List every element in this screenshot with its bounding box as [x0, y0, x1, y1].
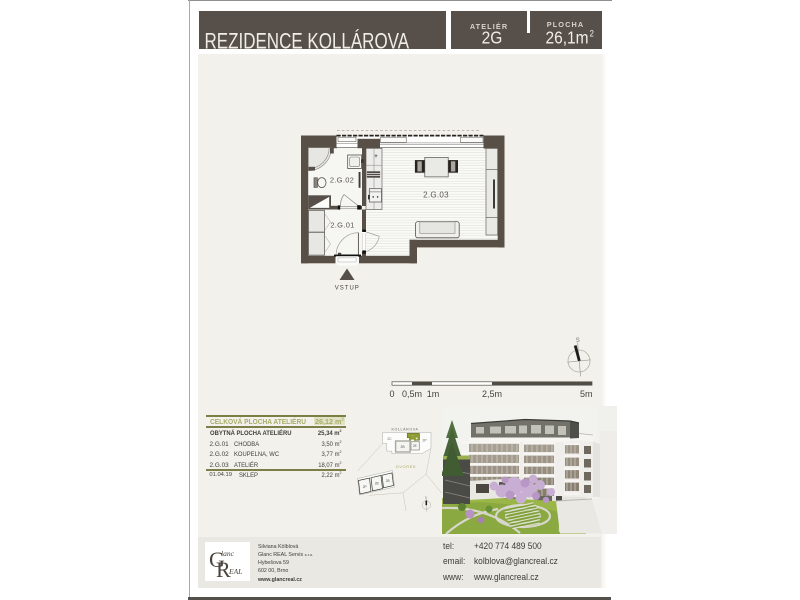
svg-text:0,5m: 0,5m [402, 389, 422, 399]
svg-text:REZIDENCE KOLLÁROVA: REZIDENCE KOLLÁROVA [205, 28, 410, 54]
svg-text:S: S [576, 338, 580, 344]
svg-text:DVOREK: DVOREK [396, 464, 417, 469]
svg-text:0: 0 [390, 389, 395, 399]
svg-text:2.G.01: 2.G.01 [330, 220, 354, 229]
svg-text:2.G.02: 2.G.02 [330, 175, 354, 184]
svg-text:1m: 1m [427, 389, 440, 399]
svg-text:KOLLÁROVA: KOLLÁROVA [392, 427, 419, 431]
svg-text:2P: 2P [363, 485, 367, 489]
svg-text:2G: 2G [482, 27, 503, 47]
svg-text:EAL: EAL [228, 567, 242, 576]
svg-text:2B: 2B [386, 479, 390, 483]
svg-text:2: 2 [590, 28, 595, 39]
svg-text:5m: 5m [580, 389, 593, 399]
svg-text:VSTUP: VSTUP [335, 286, 360, 292]
svg-text:2B: 2B [401, 445, 406, 449]
svg-text:26,1m: 26,1m [546, 27, 589, 47]
svg-text:2,5m: 2,5m [482, 389, 502, 399]
svg-text:2B: 2B [375, 482, 379, 486]
svg-text:S: S [425, 495, 427, 499]
svg-text:2.G.03: 2.G.03 [423, 191, 449, 200]
svg-text:2E: 2E [413, 444, 417, 448]
svg-text:2P: 2P [423, 439, 428, 443]
svg-text:2C: 2C [387, 437, 392, 441]
